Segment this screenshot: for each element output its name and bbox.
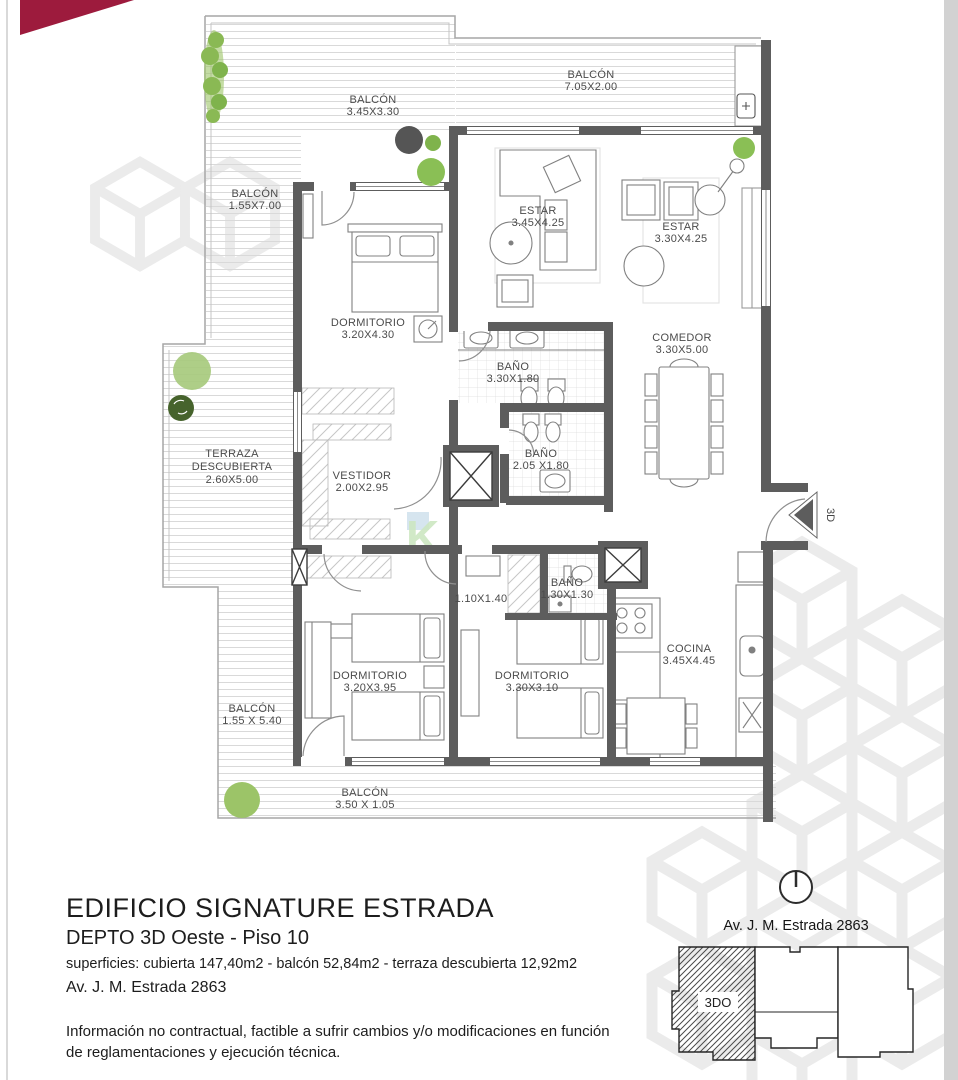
balcony-unit: [735, 46, 763, 126]
room-label-terraza-name2: DESCUBIERTA: [192, 461, 273, 473]
keyplan-unit-right: [838, 947, 913, 1057]
room-label-balcon-bottom-dims: 3.50 X 1.05: [335, 799, 395, 811]
page-edge-left: [6, 0, 8, 1080]
surfaces-line: superficies: cubierta 147,40m2 - balcón …: [66, 956, 577, 972]
planter-icon: [395, 126, 423, 154]
page-title: EDIFICIO SIGNATURE ESTRADA: [66, 893, 494, 924]
room-label-balcon-bottom-name: BALCÓN: [341, 786, 388, 799]
room-label-balcon-lower-name: BALCÓN: [228, 702, 275, 715]
room-label-dorm-3-dims: 3.30X3.10: [506, 682, 559, 694]
keyplan-address: Av. J. M. Estrada 2863: [723, 918, 868, 934]
room-label-dorm-2-dims: 3.20X3.95: [344, 682, 397, 694]
room-label-bano-3-name: BAÑO: [551, 576, 584, 589]
unit-subtitle: DEPTO 3D Oeste - Piso 10: [66, 927, 309, 950]
room-label-estar-left-dims: 3.45X4.25: [512, 217, 565, 229]
room-label-bano-principal-name: BAÑO: [497, 360, 530, 373]
room-label-vestidor-name: VESTIDOR: [333, 470, 392, 482]
brand-logo-watermark: K: [406, 511, 439, 563]
room-label-bano-principal-dims: 3.30X1.80: [487, 373, 540, 385]
room-label-bano-3-dims: 1.30X1.30: [541, 589, 594, 601]
room-label-vestidor-dims: 2.00X2.95: [336, 482, 389, 494]
room-label-bano-2-name: BAÑO: [525, 447, 558, 460]
room-label-dorm-3-name: DORMITORIO: [495, 670, 569, 682]
disclaimer: Información no contractual, factible a s…: [66, 1021, 706, 1063]
svg-text:K: K: [406, 511, 439, 563]
keyplan: Av. J. M. Estrada 2863 3DO: [672, 871, 913, 1060]
room-label-balcon-left-dims: 1.55X7.00: [229, 200, 282, 212]
room-label-comedor-name: COMEDOR: [652, 332, 712, 344]
room-label-lavadero-dims: 1.10X1.40: [455, 593, 508, 605]
north-compass-icon: [780, 871, 812, 903]
floorplan-page: K: [0, 0, 958, 1080]
room-label-dorm-2-name: DORMITORIO: [333, 670, 407, 682]
entrance-marker-label: 3D: [824, 508, 836, 522]
room-label-bano-2-dims: 2.05 X1.80: [513, 460, 569, 472]
entrance-marker: 3D: [789, 492, 836, 538]
room-label-balcon-left-name: BALCÓN: [231, 187, 278, 200]
room-label-terraza-name: TERRAZA: [205, 448, 259, 460]
room-label-terraza-dims: 2.60X5.00: [206, 474, 259, 486]
room-label-balcon-top-name: BALCÓN: [349, 93, 396, 106]
room-label-cocina-name: COCINA: [667, 643, 712, 655]
room-label-comedor-dims: 3.30X5.00: [656, 344, 709, 356]
room-label-estar-right-name: ESTAR: [662, 221, 699, 233]
corner-banner: [20, 0, 134, 35]
keyplan-unit-middle: [755, 947, 838, 1048]
page-edge-right: [944, 0, 958, 1080]
disclaimer-line-1: Información no contractual, factible a s…: [66, 1021, 706, 1042]
keyplan-unit-label: 3DO: [705, 995, 732, 1010]
room-label-dorm-principal-dims: 3.20X4.30: [342, 329, 395, 341]
disclaimer-line-2: de reglamentaciones y ejecución técnica.: [66, 1042, 706, 1063]
room-label-balcon-top-dims: 3.45X3.30: [347, 106, 400, 118]
room-label-balcon-top-right-name: BALCÓN: [567, 68, 614, 81]
address-line: Av. J. M. Estrada 2863: [66, 979, 226, 997]
room-label-dorm-principal-name: DORMITORIO: [331, 317, 405, 329]
room-label-balcon-lower-dims: 1.55 X 5.40: [222, 715, 282, 727]
room-label-estar-right-dims: 3.30X4.25: [655, 233, 708, 245]
room-label-balcon-top-right-dims: 7.05X2.00: [565, 81, 618, 93]
room-label-cocina-dims: 3.45X4.45: [663, 655, 716, 667]
room-label-estar-left-name: ESTAR: [519, 205, 556, 217]
